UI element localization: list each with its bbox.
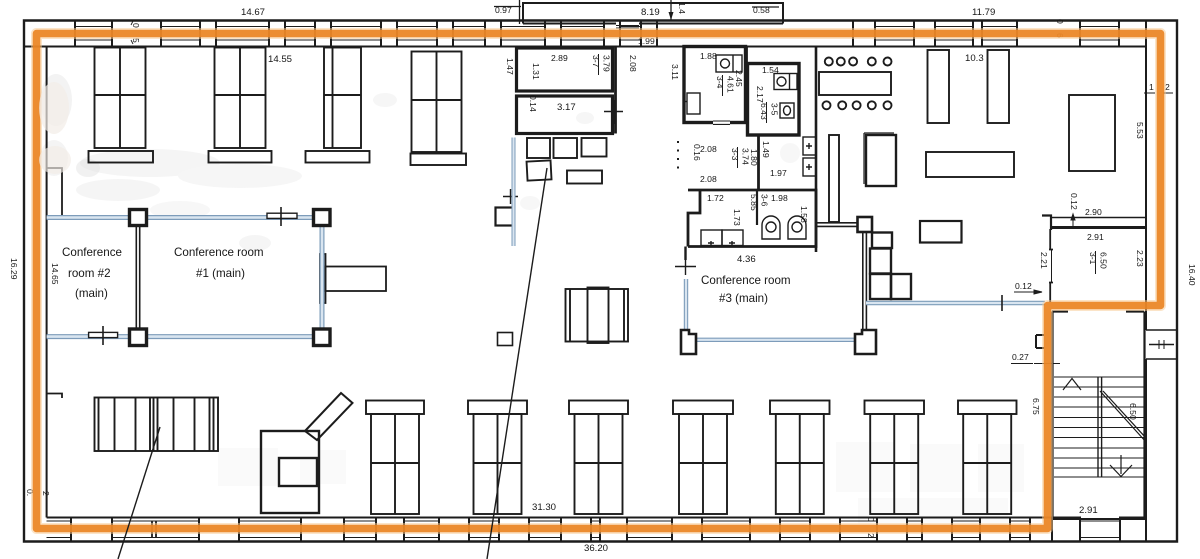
svg-text:3-7: 3-7: [591, 55, 601, 68]
svg-text:Conference: Conference: [62, 246, 122, 259]
svg-text:0: 0: [1055, 19, 1065, 24]
svg-text:1.4: 1.4: [677, 2, 687, 14]
svg-text:Conference room: Conference room: [174, 246, 264, 259]
svg-text:2.21: 2.21: [1039, 252, 1049, 269]
svg-text:1.47: 1.47: [505, 58, 515, 75]
svg-text:2: 2: [41, 491, 51, 496]
svg-text:36.20: 36.20: [584, 543, 608, 554]
svg-text:6.43: 6.43: [759, 103, 769, 120]
svg-text:2.91: 2.91: [1079, 505, 1098, 516]
svg-text:Conference room: Conference room: [701, 274, 791, 287]
svg-text:0.14: 0.14: [528, 95, 538, 112]
svg-text:1.54: 1.54: [762, 65, 779, 75]
svg-text:14.55: 14.55: [268, 54, 292, 65]
svg-text:3.79: 3.79: [602, 55, 612, 72]
svg-text:0: 0: [131, 23, 141, 28]
svg-text:3.17: 3.17: [557, 102, 576, 113]
svg-text:0.27: 0.27: [1012, 352, 1029, 362]
svg-text:3-1: 3-1: [1088, 252, 1098, 265]
svg-text:0: 0: [866, 517, 876, 522]
svg-text:1.80: 1.80: [749, 149, 759, 166]
svg-text:0.58: 0.58: [753, 5, 770, 15]
svg-text:6.50: 6.50: [1128, 403, 1138, 420]
svg-text:1.73: 1.73: [732, 209, 742, 226]
svg-text:16.40: 16.40: [1187, 264, 1197, 286]
svg-text:6.75: 6.75: [1031, 398, 1041, 415]
svg-text:1.97: 1.97: [770, 168, 787, 178]
svg-text:1.88: 1.88: [700, 51, 717, 61]
svg-text:#1 (main): #1 (main): [196, 267, 245, 280]
svg-text:5.53: 5.53: [1135, 122, 1145, 139]
svg-text:31.30: 31.30: [532, 502, 556, 513]
svg-text:2.89: 2.89: [551, 53, 568, 63]
svg-text:5.85: 5.85: [749, 194, 759, 211]
svg-text:11.79: 11.79: [972, 7, 995, 18]
svg-text:16.29: 16.29: [9, 258, 19, 280]
svg-text:4.61: 4.61: [726, 76, 736, 93]
svg-text:2.91: 2.91: [1087, 232, 1104, 242]
svg-text:3-5: 3-5: [770, 103, 780, 116]
svg-text:14.65: 14.65: [50, 263, 60, 285]
svg-text:1.31: 1.31: [531, 63, 541, 80]
svg-text:1.58: 1.58: [799, 206, 809, 223]
svg-text:2.08: 2.08: [628, 55, 638, 72]
svg-text:3-4: 3-4: [715, 76, 725, 89]
svg-text:2.17: 2.17: [755, 86, 765, 103]
svg-text:2.90: 2.90: [1085, 207, 1102, 217]
svg-text:3-6: 3-6: [760, 194, 770, 207]
svg-text:10.3: 10.3: [965, 53, 984, 64]
svg-text:6.50: 6.50: [1099, 252, 1109, 269]
svg-text:1.72: 1.72: [707, 193, 724, 203]
svg-text:4.36: 4.36: [737, 254, 756, 265]
svg-text:0.97: 0.97: [495, 5, 512, 15]
svg-text:3-3: 3-3: [730, 148, 740, 161]
svg-text:0.12: 0.12: [1069, 193, 1079, 210]
svg-text:14.67: 14.67: [241, 7, 265, 18]
svg-text:(main): (main): [75, 287, 108, 300]
svg-text:2.08: 2.08: [700, 174, 717, 184]
svg-text:8.19: 8.19: [641, 7, 660, 18]
svg-text:room #2: room #2: [68, 267, 111, 280]
svg-text:3.11: 3.11: [670, 64, 680, 80]
svg-text:#3 (main): #3 (main): [719, 292, 768, 305]
svg-text:1.49: 1.49: [761, 141, 771, 158]
svg-text:1.98: 1.98: [771, 193, 788, 203]
svg-text:0.16: 0.16: [692, 144, 702, 161]
svg-text:0.12: 0.12: [1015, 281, 1032, 291]
svg-text:3.74: 3.74: [741, 148, 751, 165]
svg-text:1: 1: [1149, 82, 1154, 92]
svg-text:2.23: 2.23: [1135, 250, 1145, 267]
